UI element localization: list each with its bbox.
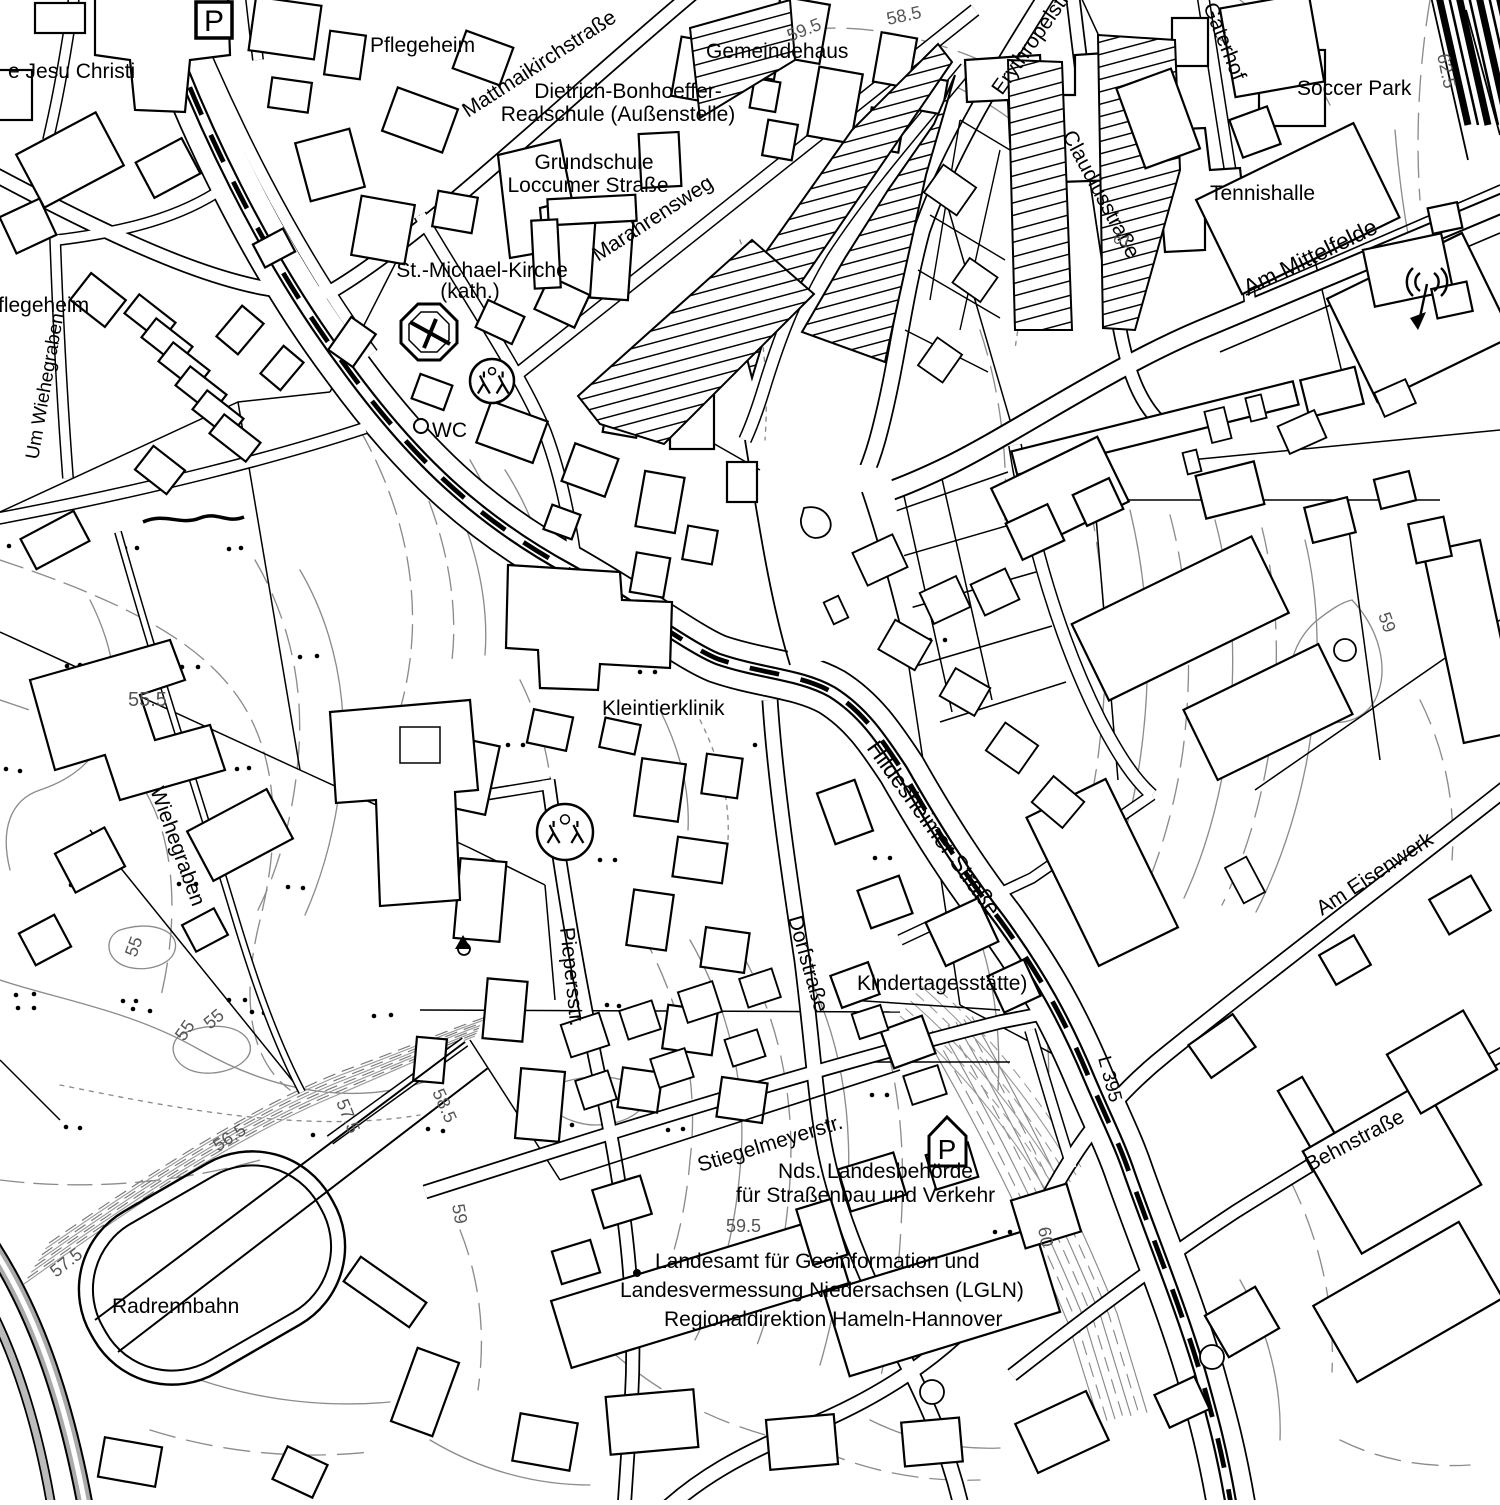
svg-text:Pflegeheim: Pflegeheim <box>370 34 475 57</box>
svg-text:Realschule (Außenstelle): Realschule (Außenstelle) <box>501 103 736 126</box>
svg-text:e Jesu Christi: e Jesu Christi <box>8 60 135 83</box>
svg-text:59.5: 59.5 <box>726 1216 761 1236</box>
svg-text:Soccer Park: Soccer Park <box>1297 77 1412 100</box>
svg-text:WC: WC <box>432 419 467 442</box>
svg-text:St.-Michael-Kirche: St.-Michael-Kirche <box>396 259 568 282</box>
svg-text:60: 60 <box>1034 1225 1057 1248</box>
svg-text:Landesamt für Geoinformation u: Landesamt für Geoinformation und <box>655 1250 980 1273</box>
svg-text:Kleintierklinik: Kleintierklinik <box>602 697 725 720</box>
svg-text:Kindertagesstätte): Kindertagesstätte) <box>857 972 1027 995</box>
svg-text:Regionaldirektion Hameln-Hanno: Regionaldirektion Hameln-Hannover <box>664 1308 1003 1331</box>
svg-text:Tennishalle: Tennishalle <box>1210 182 1315 205</box>
svg-text:55.5: 55.5 <box>128 689 167 711</box>
svg-text:59: 59 <box>448 1202 471 1225</box>
svg-text:für Straßenbau und Verkehr: für Straßenbau und Verkehr <box>736 1184 995 1207</box>
svg-text:Pflegeheim: Pflegeheim <box>0 294 89 317</box>
svg-text:Landesvermessung Niedersachsen: Landesvermessung Niedersachsen (LGLN) <box>620 1279 1024 1302</box>
svg-text:Gemeindehaus: Gemeindehaus <box>706 40 848 63</box>
svg-text:(kath.): (kath.) <box>440 280 500 303</box>
svg-text:Loccumer Straße: Loccumer Straße <box>507 174 668 197</box>
svg-text:Dietrich-Bonhoeffer-: Dietrich-Bonhoeffer- <box>534 80 722 103</box>
svg-text:Radrennbahn: Radrennbahn <box>112 1295 239 1318</box>
svg-text:Nds. Landesbehörde: Nds. Landesbehörde <box>778 1160 973 1183</box>
svg-text:P: P <box>204 5 224 38</box>
svg-text:Grundschule: Grundschule <box>534 151 653 174</box>
